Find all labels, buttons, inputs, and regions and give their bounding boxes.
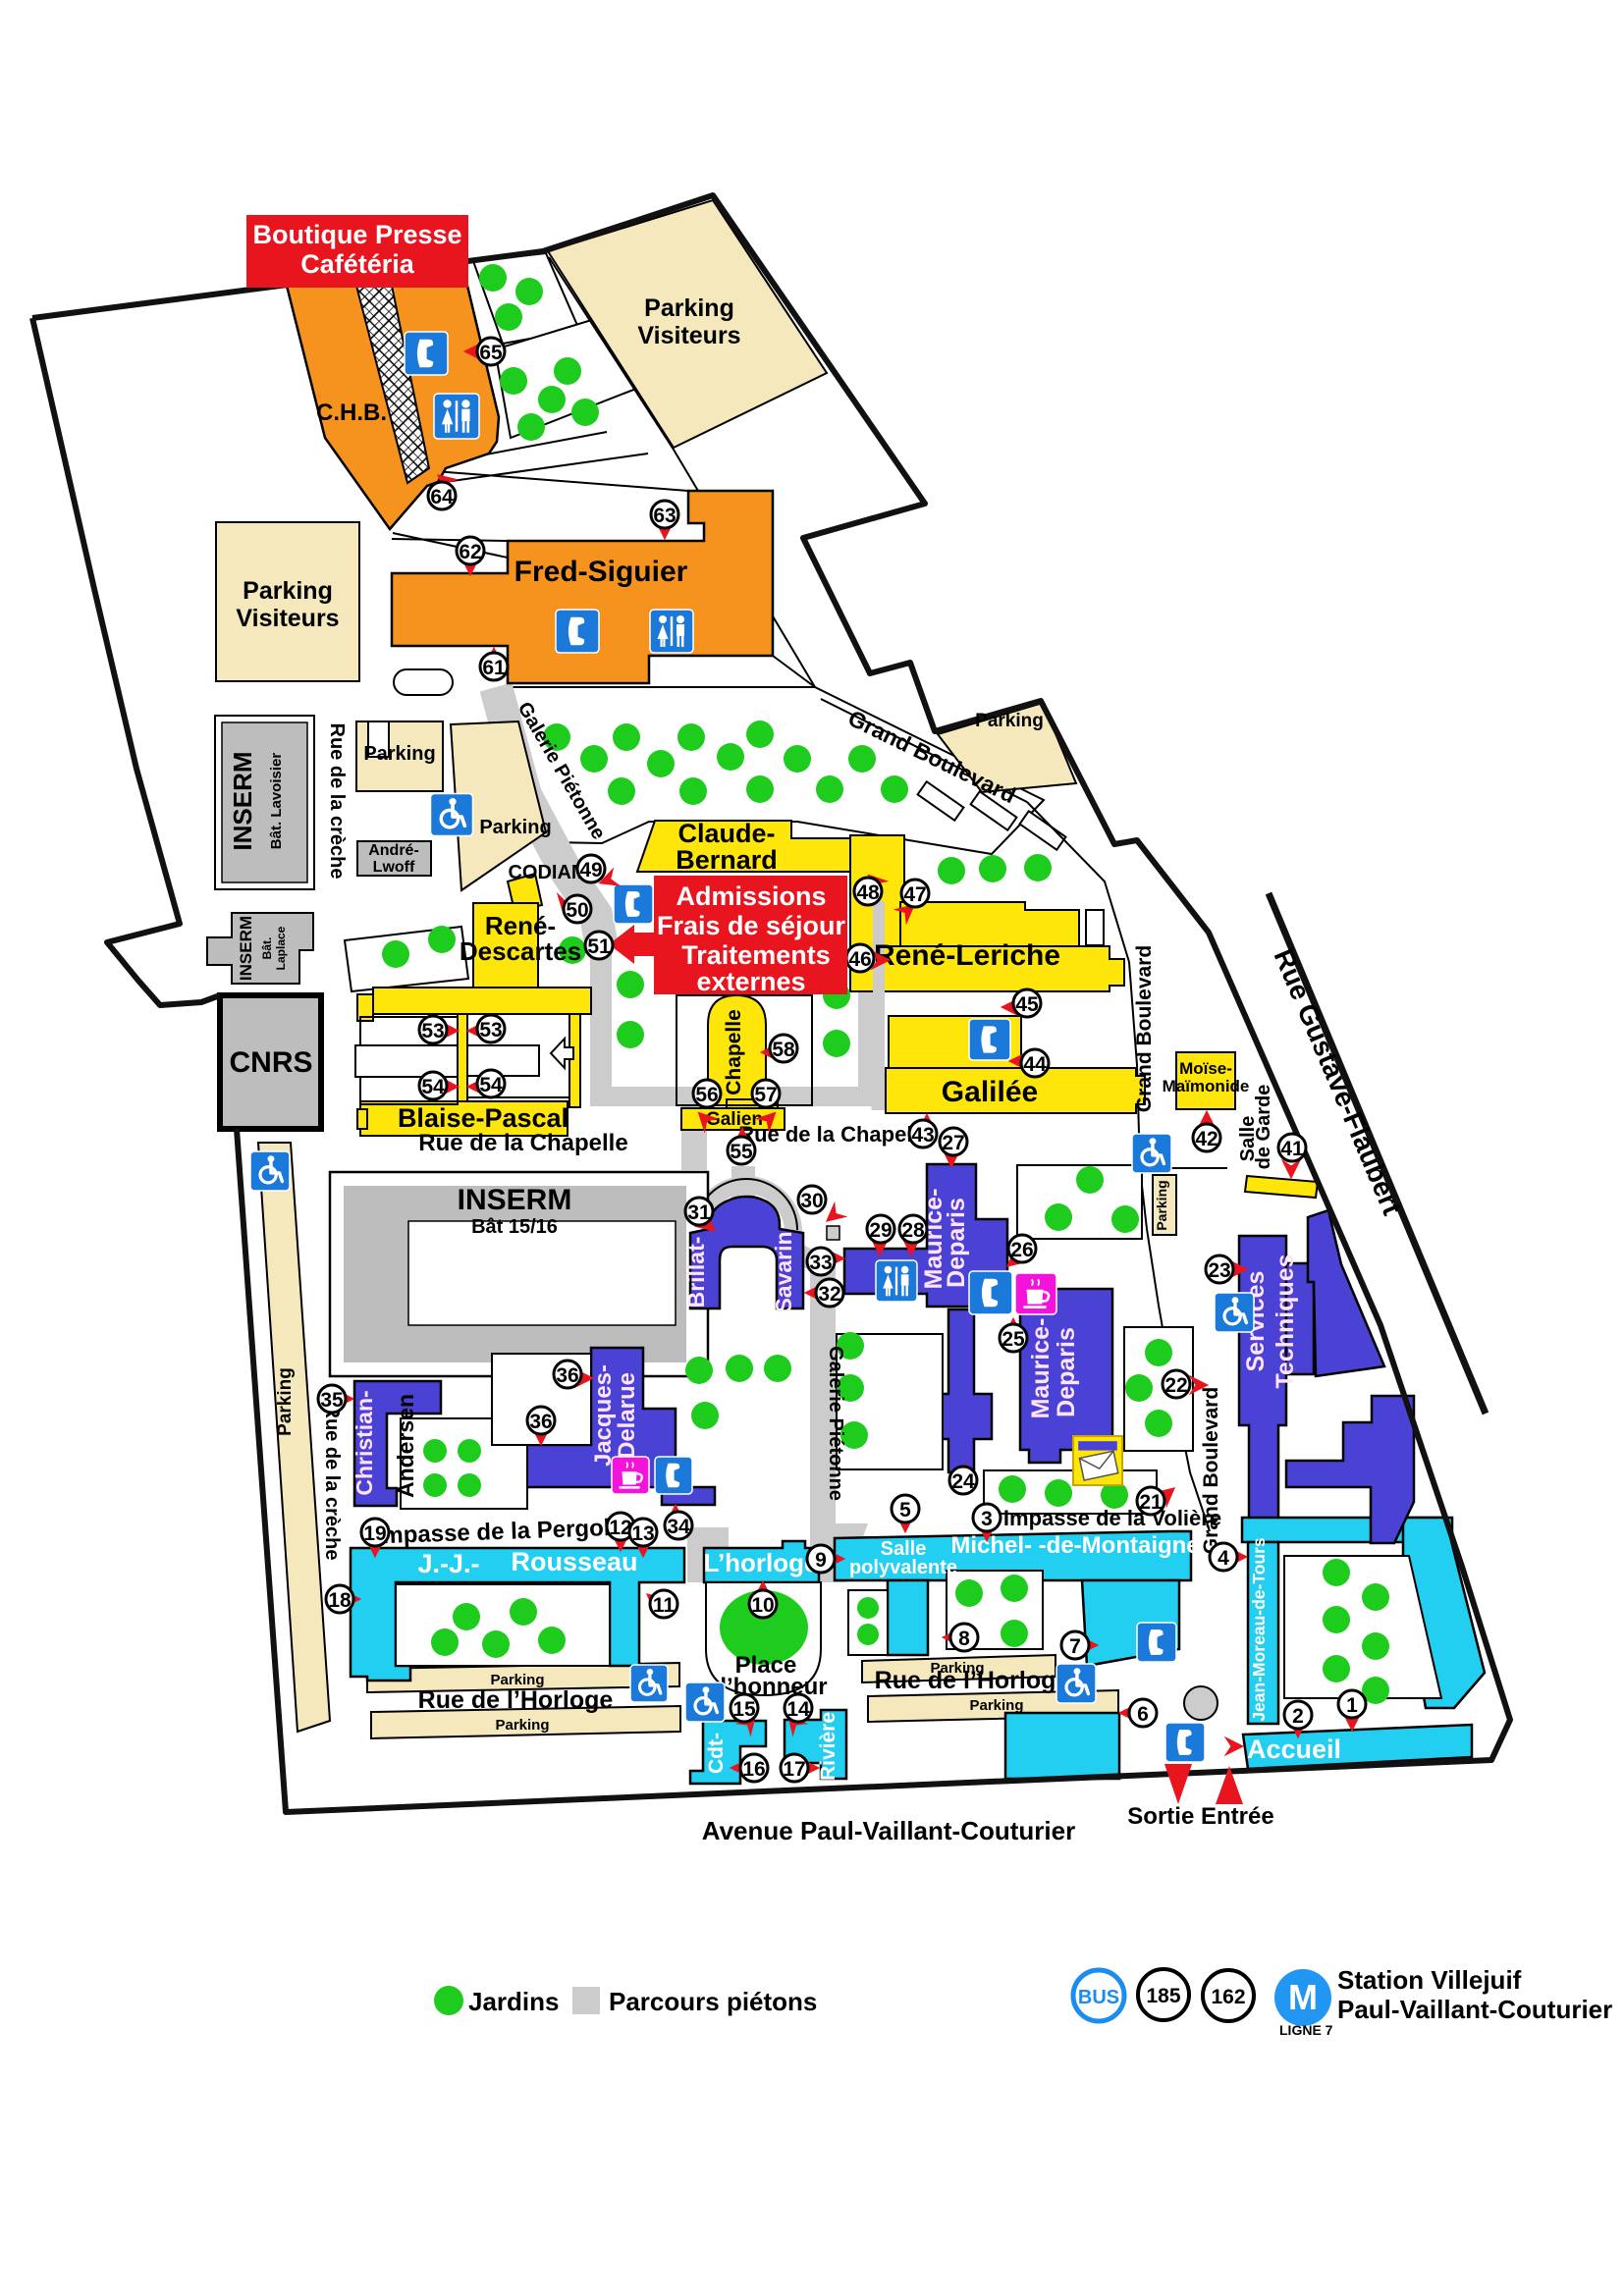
svg-text:INSERM: INSERM (458, 1184, 572, 1216)
svg-text:Descartes: Descartes (460, 936, 581, 966)
svg-text:Parking: Parking (644, 294, 734, 322)
svg-text:J.-J.-: J.-J.- (417, 1549, 479, 1578)
svg-text:7: 7 (1069, 1635, 1081, 1658)
svg-text:Galerie Piétonne: Galerie Piétonne (825, 1346, 846, 1501)
svg-text:53: 53 (479, 1019, 502, 1041)
svg-text:Parking: Parking (275, 1367, 296, 1436)
svg-text:Traitements: Traitements (681, 940, 831, 970)
svg-text:René-Leriche: René-Leriche (874, 939, 1060, 972)
svg-text:51: 51 (587, 935, 611, 958)
svg-text:34: 34 (667, 1516, 690, 1538)
svg-text:Bât 15/16: Bât 15/16 (471, 1216, 558, 1238)
svg-text:CNRS: CNRS (229, 1046, 312, 1079)
svg-text:Deparis: Deparis (1053, 1327, 1080, 1417)
svg-text:Parking: Parking (930, 1660, 984, 1677)
svg-text:Grand Boulevard: Grand Boulevard (1200, 1387, 1222, 1554)
svg-text:Rue de la crèche: Rue de la crèche (326, 723, 348, 880)
svg-text:Moïse-: Moïse- (1179, 1059, 1232, 1078)
svg-text:Andersen: Andersen (393, 1394, 418, 1498)
svg-text:19: 19 (363, 1522, 386, 1545)
svg-text:Deparis: Deparis (943, 1198, 970, 1288)
svg-text:Techniques: Techniques (1272, 1254, 1299, 1388)
svg-text:Accueil: Accueil (1247, 1735, 1341, 1764)
svg-text:9: 9 (815, 1549, 827, 1572)
svg-text:André-: André- (368, 842, 419, 859)
svg-text:Blaise-Pascal: Blaise-Pascal (398, 1103, 568, 1133)
svg-text:45: 45 (1015, 993, 1039, 1016)
svg-text:36: 36 (556, 1364, 578, 1387)
svg-text:Parking: Parking (243, 577, 333, 605)
svg-text:Parking: Parking (1154, 1180, 1169, 1230)
svg-text:C.H.B.: C.H.B. (316, 400, 387, 426)
svg-text:Station Villejuif: Station Villejuif (1337, 1965, 1522, 1995)
svg-text:CODIAM: CODIAM (508, 862, 587, 883)
svg-text:62: 62 (459, 541, 481, 563)
svg-text:28: 28 (901, 1219, 925, 1242)
svg-text:6: 6 (1137, 1703, 1149, 1726)
svg-text:61: 61 (482, 657, 506, 679)
svg-text:Boutique Presse: Boutique Presse (252, 220, 461, 249)
svg-text:Fred-Siguier: Fred-Siguier (514, 556, 688, 588)
svg-text:de Garde: de Garde (1253, 1085, 1274, 1170)
svg-text:Cafétéria: Cafétéria (300, 249, 415, 279)
svg-text:17: 17 (783, 1758, 805, 1781)
svg-text:3: 3 (981, 1508, 993, 1530)
svg-text:Chapelle: Chapelle (723, 1009, 745, 1095)
svg-text:Maurice-: Maurice- (1027, 1318, 1055, 1419)
svg-text:Frais de séjour: Frais de séjour (657, 911, 846, 940)
svg-text:8: 8 (958, 1628, 970, 1650)
svg-text:26: 26 (1010, 1239, 1033, 1261)
svg-text:15: 15 (732, 1698, 756, 1721)
svg-text:Rue de la crèche: Rue de la crèche (321, 1405, 343, 1561)
svg-text:21: 21 (1139, 1491, 1163, 1514)
svg-text:Laplace: Laplace (274, 926, 288, 970)
svg-text:Savarin: Savarin (771, 1231, 796, 1312)
svg-text:63: 63 (653, 505, 676, 527)
svg-text:57: 57 (754, 1084, 777, 1106)
svg-text:Visiteurs: Visiteurs (236, 605, 339, 632)
svg-text:1: 1 (1346, 1694, 1358, 1717)
svg-text:48: 48 (856, 881, 880, 904)
svg-text:Paul-Vaillant-Couturier: Paul-Vaillant-Couturier (1337, 1995, 1612, 2024)
svg-text:Galilée: Galilée (942, 1076, 1038, 1108)
svg-text:Parking: Parking (479, 817, 551, 838)
svg-text:33: 33 (809, 1252, 832, 1274)
svg-text:Parking: Parking (490, 1672, 544, 1688)
svg-text:13: 13 (631, 1522, 654, 1545)
svg-text:53: 53 (421, 1020, 444, 1042)
svg-text:23: 23 (1208, 1259, 1230, 1282)
svg-text:185: 185 (1146, 1985, 1180, 2007)
svg-text:31: 31 (687, 1201, 711, 1224)
svg-text:polyvalente: polyvalente (849, 1557, 957, 1578)
svg-text:Brillat-: Brillat- (683, 1237, 709, 1308)
svg-text:14: 14 (786, 1698, 810, 1721)
svg-text:INSERM: INSERM (237, 916, 255, 981)
svg-text:Rue de la Chapelle: Rue de la Chapelle (738, 1122, 931, 1147)
svg-text:16: 16 (742, 1758, 765, 1781)
svg-text:Lwoff: Lwoff (373, 859, 415, 876)
svg-text:Grand Boulevard: Grand Boulevard (1133, 945, 1156, 1112)
svg-text:Parking: Parking (975, 711, 1044, 731)
svg-text:Sortie Entrée: Sortie Entrée (1127, 1803, 1273, 1830)
svg-text:Jacques-: Jacques- (590, 1364, 617, 1467)
svg-text:47: 47 (903, 883, 926, 906)
svg-text:Delarue: Delarue (614, 1372, 640, 1459)
svg-text:Parcours piétons: Parcours piétons (609, 1987, 817, 2016)
svg-text:58: 58 (772, 1039, 795, 1061)
svg-text:36: 36 (529, 1411, 552, 1433)
svg-text:30: 30 (800, 1190, 823, 1212)
svg-text:55: 55 (730, 1141, 753, 1163)
svg-text:Visiteurs: Visiteurs (637, 322, 740, 349)
svg-text:10: 10 (751, 1594, 774, 1617)
svg-text:Rivière: Rivière (817, 1712, 839, 1781)
svg-text:18: 18 (328, 1589, 352, 1612)
svg-text:44: 44 (1023, 1053, 1047, 1076)
svg-text:29: 29 (869, 1219, 892, 1242)
svg-text:11: 11 (653, 1594, 676, 1617)
svg-text:54: 54 (479, 1074, 503, 1096)
svg-text:24: 24 (951, 1470, 975, 1493)
svg-text:54: 54 (421, 1076, 445, 1098)
svg-text:65: 65 (479, 342, 503, 364)
svg-text:50: 50 (566, 899, 588, 922)
svg-text:LIGNE 7: LIGNE 7 (1279, 2022, 1333, 2038)
svg-text:56: 56 (695, 1084, 718, 1106)
svg-text:Rousseau: Rousseau (511, 1547, 637, 1576)
svg-text:4: 4 (1218, 1547, 1229, 1570)
svg-text:32: 32 (818, 1283, 840, 1306)
svg-text:162: 162 (1211, 1986, 1245, 2008)
svg-text:Rue de l’Horloge: Rue de l’Horloge (418, 1686, 614, 1714)
svg-text:5: 5 (899, 1499, 911, 1522)
svg-text:INSERM: INSERM (228, 751, 257, 850)
svg-text:27: 27 (942, 1132, 964, 1154)
svg-text:42: 42 (1195, 1128, 1218, 1150)
svg-text:Jardins: Jardins (468, 1987, 560, 2016)
svg-text:35: 35 (320, 1389, 344, 1412)
svg-text:Rue de la Chapelle: Rue de la Chapelle (418, 1130, 627, 1156)
svg-text:d’honneur: d’honneur (712, 1674, 827, 1700)
svg-text:Jean-Moreau-de-Tours: Jean-Moreau-de-Tours (1249, 1537, 1269, 1722)
svg-text:Bât.: Bât. (260, 937, 274, 960)
svg-text:M: M (1288, 1977, 1318, 2017)
svg-text:Maïmonide: Maïmonide (1163, 1077, 1250, 1095)
svg-text:43: 43 (911, 1124, 934, 1147)
svg-text:Claude-: Claude- (677, 819, 775, 848)
svg-text:25: 25 (1001, 1328, 1025, 1351)
svg-text:Christian-: Christian- (352, 1390, 377, 1495)
svg-text:BUS: BUS (1078, 1987, 1119, 2008)
svg-text:Admissions: Admissions (676, 881, 826, 911)
svg-text:L’horloge: L’horloge (704, 1548, 819, 1577)
svg-text:externes: externes (696, 967, 805, 996)
svg-text:22: 22 (1164, 1374, 1187, 1397)
svg-text:46: 46 (848, 948, 871, 971)
svg-text:Parking: Parking (495, 1717, 549, 1734)
svg-text:Impasse de la Volière: Impasse de la Volière (1003, 1506, 1221, 1530)
svg-text:Cdt-: Cdt- (705, 1733, 728, 1774)
svg-text:2: 2 (1292, 1705, 1304, 1728)
svg-text:Avenue Paul-Vaillant-Couturier: Avenue Paul-Vaillant-Couturier (702, 1816, 1075, 1845)
svg-text:64: 64 (430, 486, 454, 508)
svg-text:Parking: Parking (969, 1697, 1023, 1714)
svg-text:41: 41 (1280, 1138, 1304, 1160)
svg-text:Bât. Lavoisier: Bât. Lavoisier (268, 753, 285, 850)
svg-text:49: 49 (579, 859, 602, 881)
svg-text:Bernard: Bernard (676, 845, 778, 875)
svg-text:Parking: Parking (363, 743, 435, 765)
